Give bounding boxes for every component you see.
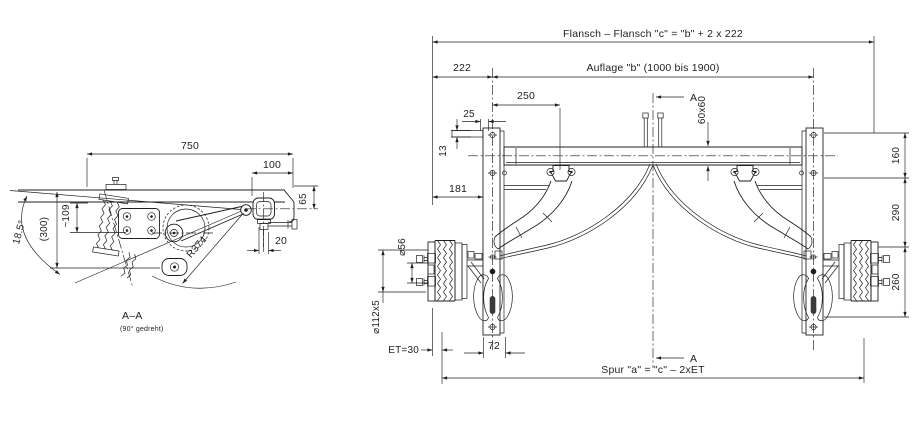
- lower-bracket: [162, 259, 187, 276]
- spring-top-clamp: [106, 178, 126, 190]
- dim-20-label: 20: [275, 235, 287, 247]
- link-plate: [119, 209, 160, 239]
- link-bar: [504, 186, 549, 190]
- drawing-root: 750 100 65 ~109 (300) 18.5° R374 20 A–A …: [10, 28, 909, 384]
- dim-72-label: 72: [488, 340, 500, 352]
- dim-d56-label: ⌀56: [397, 238, 408, 256]
- dim-25-label: 25: [463, 109, 475, 120]
- front-dims: [378, 36, 909, 384]
- dim-100-label: 100: [263, 159, 281, 171]
- dim-d112-label: ⌀112x5: [371, 300, 382, 334]
- drawing-svg: 750 100 65 ~109 (300) 18.5° R374 20 A–A …: [0, 0, 917, 430]
- dim-222-label: 222: [453, 62, 471, 74]
- center-stud: [643, 113, 648, 147]
- side-dims: [50, 154, 318, 268]
- dim-109-label: ~109: [61, 204, 72, 228]
- axle-half-mirror: [654, 68, 890, 352]
- trailing-arm: [494, 181, 572, 249]
- dim-et-label: ET=30: [388, 345, 419, 356]
- dim-300-label: (300): [39, 217, 50, 241]
- dim-60x60-label: 60x60: [697, 96, 708, 124]
- dim-auflage-label: Auflage "b" (1000 bis 1900): [586, 62, 719, 74]
- wheel-studs: [417, 256, 429, 286]
- section-a-bottom-label: A: [690, 353, 697, 365]
- dim-181-label: 181: [449, 183, 467, 195]
- spring-pack: [91, 194, 129, 256]
- shock-bracket: [547, 166, 575, 182]
- dim-290-label: 290: [891, 204, 902, 222]
- top-tab: [452, 131, 483, 138]
- section-title: A–A: [122, 310, 142, 322]
- front-view: Flansch – Flansch "c" = "b" + 2 x 222 22…: [371, 28, 909, 384]
- side-view: 750 100 65 ~109 (300) 18.5° R374 20 A–A …: [10, 140, 318, 333]
- dim-260-label: 260: [891, 273, 902, 291]
- dim-angle-label: 18.5°: [11, 219, 28, 245]
- dim-250-label: 250: [517, 90, 535, 102]
- dim-160-label: 160: [891, 147, 902, 165]
- dim-65-label: 65: [298, 193, 309, 205]
- brake-drum: [428, 241, 468, 302]
- spindle: [467, 252, 484, 284]
- dim-spur-label: Spur "a" = "c" – 2xET: [601, 364, 705, 376]
- axle-half: [417, 68, 653, 352]
- section-note: (90° gedreht): [120, 325, 164, 333]
- dim-flansch-label: Flansch – Flansch "c" = "b" + 2 x 222: [563, 28, 743, 40]
- technical-drawing-axle: 750 100 65 ~109 (300) 18.5° R374 20 A–A …: [0, 0, 917, 430]
- dim-13-label: 13: [438, 145, 449, 157]
- brake-cable: [495, 164, 653, 259]
- dim-750-label: 750: [181, 140, 199, 152]
